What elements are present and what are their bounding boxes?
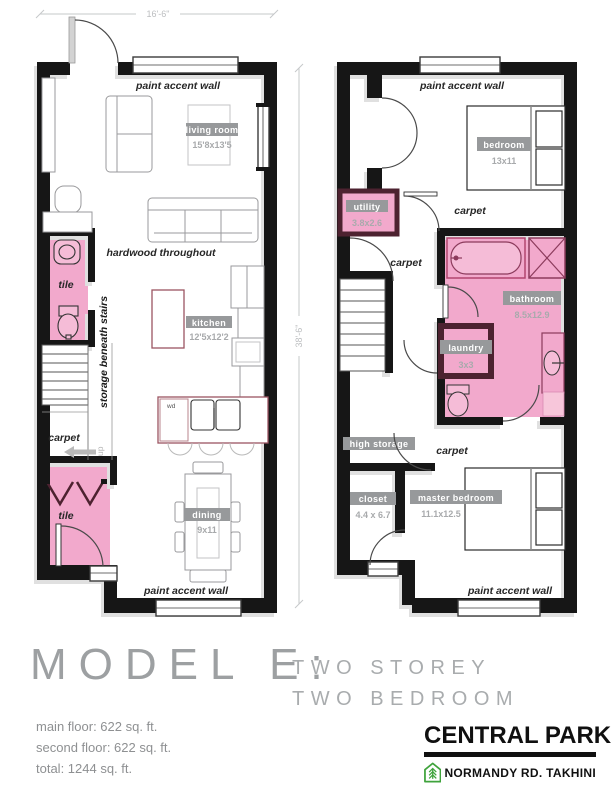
paint-accent-wall-top-label: paint accent wall: [135, 80, 221, 92]
island-sink-counter: wd: [158, 397, 268, 443]
master-bedroom-area: master bedroom 11.1x12.5: [410, 468, 565, 550]
laundry-door: [404, 340, 437, 373]
carpet-upper-label: carpet: [454, 205, 486, 217]
logo-brand-text: CENTRAL PARK: [424, 722, 596, 750]
toilet-icon: [58, 306, 78, 339]
bedroom-dims: 13x11: [492, 156, 517, 166]
desk-chair-icon: [55, 186, 81, 213]
bar-stools-icon: [168, 443, 254, 455]
master-bedroom-label: master bedroom: [418, 493, 494, 503]
carpet-landing-label: carpet: [48, 432, 80, 444]
high-storage-label: high storage: [350, 439, 409, 449]
living-room-label: living room: [186, 125, 239, 135]
dining-table-icon: [175, 462, 240, 582]
kitchen-area: kitchen 12'5x12'2 wd: [152, 266, 268, 455]
dining-dims: 9x11: [197, 525, 217, 535]
bathtub-icon: [447, 238, 525, 278]
logo-subtitle-text: NORMANDY RD. TAKHINI: [444, 766, 596, 780]
window-bottom: [156, 600, 241, 616]
stove-icon: [232, 338, 264, 366]
bathroom-label: bathroom: [510, 294, 555, 304]
sofa-vertical-icon: [106, 96, 152, 172]
dining-area: dining 9x11: [175, 462, 240, 582]
hardwood-note-label: hardwood throughout: [106, 247, 216, 259]
utility-label: utility: [354, 202, 381, 212]
hall-door: [404, 192, 439, 231]
second-floor-area: second floor: 622 sq. ft.: [36, 737, 171, 758]
floorplans-drawing: 16'-6" 38'-6": [0, 0, 612, 632]
model-title: MODEL E:: [30, 640, 335, 690]
master-bed-icon: [465, 468, 565, 550]
powder-tile-label: tile: [58, 279, 73, 291]
living-room-area: living room 15'8x13'5: [42, 78, 258, 242]
kitchen-dims: 12'5x12'2: [189, 332, 228, 342]
toilet2-icon: [447, 385, 469, 416]
central-park-logo: CENTRAL PARK NORMANDY RD. TAKHINI: [424, 722, 596, 785]
counter-icon: [238, 308, 264, 338]
laundry-room: laundry 3x3: [440, 326, 492, 376]
bathroom-dims: 8.5x12.9: [514, 310, 549, 320]
carpet-lower-label: carpet: [436, 445, 468, 457]
fridge-icon: [231, 266, 264, 308]
subtitle-line1: TWO STOREY: [292, 653, 519, 684]
closet-dims: 4.4 x 6.7: [355, 510, 390, 520]
closet-door: [370, 530, 405, 565]
floorplan-sheet: 16'-6" 38'-6": [0, 0, 612, 792]
up-label: up: [95, 446, 105, 456]
dining-label: dining: [192, 510, 221, 520]
entry-tile-label: tile: [58, 510, 73, 522]
window-right-wall: [256, 103, 270, 171]
paint-accent-wall-top2-label: paint accent wall: [419, 80, 505, 92]
subtitle-line2: TWO BEDROOM: [292, 684, 519, 715]
window-closet: [368, 562, 398, 576]
bedroom-double-door: [382, 98, 417, 168]
desk-icon: [43, 212, 92, 232]
kitchen-label: kitchen: [192, 318, 226, 328]
shower-icon: [529, 238, 565, 278]
island-icon: [152, 290, 184, 348]
vanity-icon: [542, 333, 564, 393]
laundry-dims: 3x3: [458, 360, 473, 370]
media-unit-icon: [42, 78, 55, 172]
house-tree-icon: [424, 760, 441, 785]
kitchen-sink-icon: [191, 400, 214, 430]
living-room-dims: 15'8x13'5: [192, 140, 231, 150]
width-dimension-label: 16'-6": [147, 9, 170, 19]
closet-label: closet: [359, 494, 387, 504]
stairs2-icon: [340, 279, 385, 371]
entry-door: [69, 17, 118, 63]
floor1-plan: 16'-6" 38'-6": [36, 9, 304, 616]
area-stats: main floor: 622 sq. ft. second floor: 62…: [36, 716, 171, 779]
utility-dims: 3.8x2.6: [352, 218, 382, 228]
bedroom-area: bedroom 13x11: [467, 106, 565, 190]
utility-room: utility 3.8x2.6: [340, 191, 397, 234]
height-dimension-label: 38'-6": [294, 325, 304, 348]
window-top: [133, 57, 238, 73]
total-area: total: 1244 sq. ft.: [36, 758, 171, 779]
carpet-mid-label: carpet: [390, 257, 422, 269]
master-bedroom-dims: 11.1x12.5: [421, 509, 461, 519]
storage-note-label: storage beneath stairs: [98, 296, 110, 408]
floor2-plan: paint accent wall bedroom 13x11 carpet u…: [337, 57, 577, 616]
paint-accent-wall-bottom-label: paint accent wall: [143, 585, 229, 597]
model-subtitle: TWO STOREY TWO BEDROOM: [292, 653, 519, 715]
bedroom-label: bedroom: [483, 140, 524, 150]
sofa-horizontal-icon: [148, 198, 258, 242]
logo-underline: [424, 752, 596, 757]
dishwasher-label: wd: [166, 403, 176, 410]
paint-accent-wall-bottom2-label: paint accent wall: [467, 585, 553, 597]
bath-mat-icon: [543, 392, 564, 416]
main-floor-area: main floor: 622 sq. ft.: [36, 716, 171, 737]
counter-lower-icon: [240, 366, 264, 400]
window-entry: [90, 566, 117, 581]
window-top-2: [420, 57, 500, 73]
laundry-label: laundry: [448, 343, 483, 353]
entry-tile-floor: [44, 463, 110, 565]
window-bottom-2: [458, 600, 540, 616]
